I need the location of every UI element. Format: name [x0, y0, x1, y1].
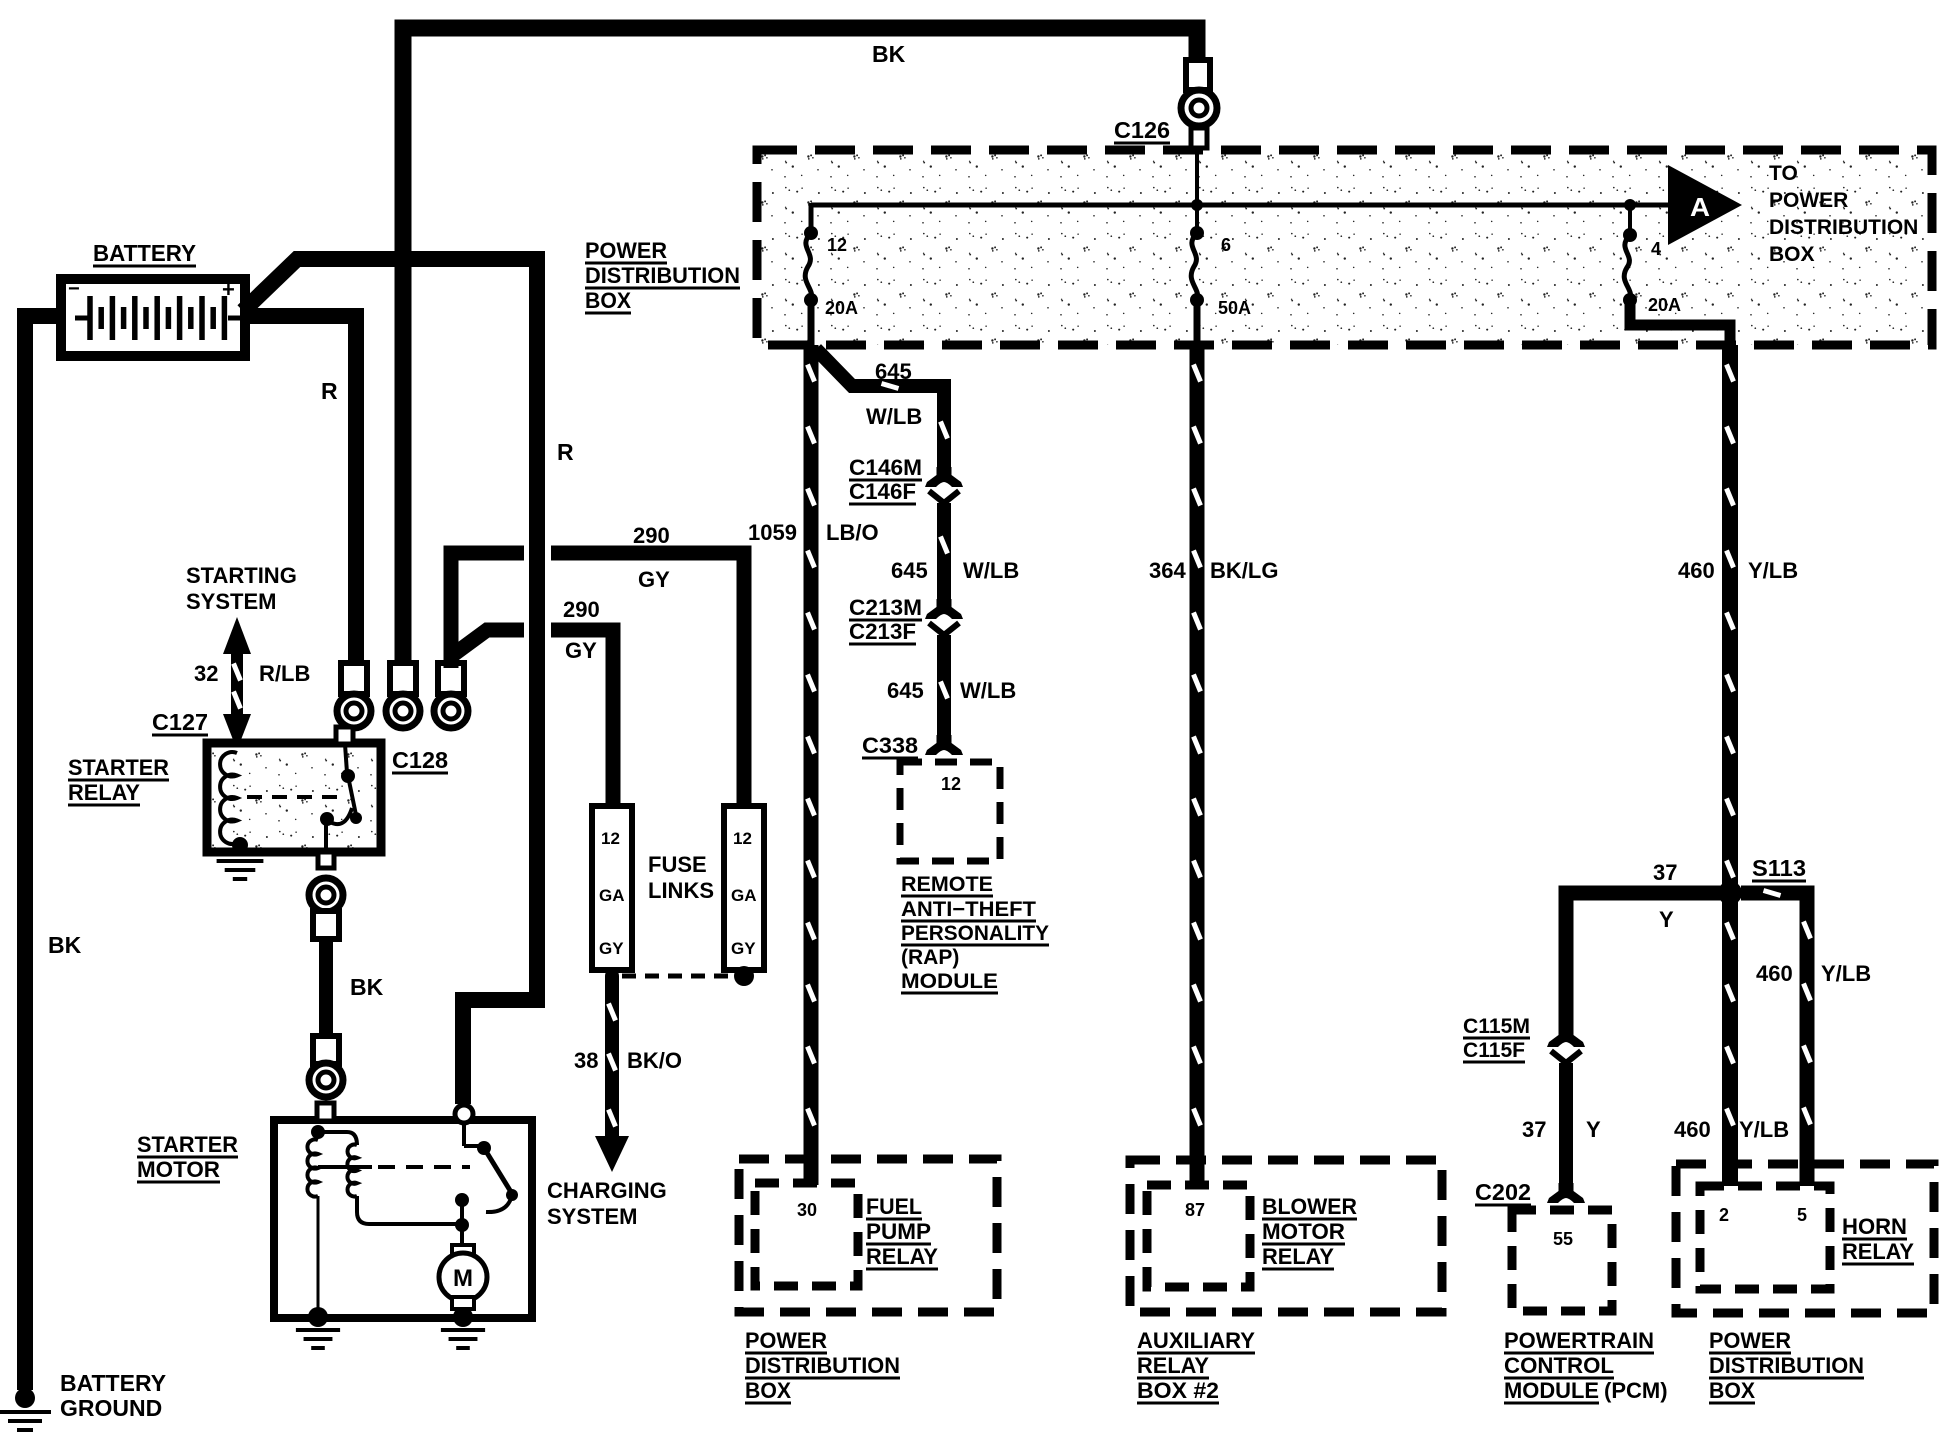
svg-text:50A: 50A: [1218, 298, 1251, 318]
svg-text:BATTERY: BATTERY: [60, 1370, 166, 1396]
svg-text:M: M: [453, 1265, 473, 1292]
svg-text:R: R: [321, 378, 338, 404]
svg-text:RELAY: RELAY: [68, 780, 140, 805]
svg-text:BOX: BOX: [1769, 243, 1815, 266]
svg-text:37: 37: [1522, 1117, 1546, 1142]
svg-text:POWERTRAIN: POWERTRAIN: [1504, 1328, 1654, 1353]
svg-text:GA: GA: [599, 886, 625, 905]
svg-text:FUSE: FUSE: [648, 852, 707, 877]
svg-text:38: 38: [574, 1048, 598, 1073]
svg-text:W/LB: W/LB: [866, 404, 922, 429]
svg-text:645: 645: [887, 678, 924, 703]
svg-text:REMOTE: REMOTE: [901, 873, 993, 896]
svg-text:+: +: [222, 277, 235, 302]
svg-text:645: 645: [891, 558, 928, 583]
svg-text:DISTRIBUTION: DISTRIBUTION: [745, 1353, 900, 1378]
svg-text:FUEL: FUEL: [866, 1194, 922, 1219]
svg-text:LB/O: LB/O: [826, 520, 879, 545]
svg-text:PERSONALITY: PERSONALITY: [901, 922, 1049, 945]
svg-text:(PCM): (PCM): [1604, 1378, 1668, 1403]
svg-text:Y/LB: Y/LB: [1748, 558, 1798, 583]
svg-text:BOX: BOX: [1709, 1378, 1755, 1403]
svg-text:20A: 20A: [825, 298, 858, 318]
svg-text:12: 12: [601, 829, 620, 848]
svg-text:PUMP: PUMP: [866, 1219, 931, 1244]
svg-text:12: 12: [941, 774, 961, 794]
svg-text:460: 460: [1678, 558, 1715, 583]
svg-text:12: 12: [827, 235, 847, 255]
svg-text:C146M: C146M: [849, 455, 922, 480]
svg-text:87: 87: [1185, 1200, 1205, 1220]
svg-text:S113: S113: [1752, 855, 1806, 881]
svg-text:A: A: [1690, 192, 1710, 222]
svg-text:Y/LB: Y/LB: [1739, 1117, 1789, 1142]
svg-text:RELAY: RELAY: [1842, 1239, 1914, 1264]
svg-text:BATTERY: BATTERY: [93, 240, 196, 266]
svg-text:460: 460: [1674, 1117, 1711, 1142]
svg-text:STARTER: STARTER: [137, 1132, 238, 1157]
svg-text:RELAY: RELAY: [1262, 1244, 1334, 1269]
svg-text:GY: GY: [599, 939, 624, 958]
svg-text:BK/LG: BK/LG: [1210, 558, 1278, 583]
svg-text:364: 364: [1149, 558, 1186, 583]
svg-text:(RAP): (RAP): [901, 946, 959, 969]
svg-text:290: 290: [563, 597, 600, 622]
svg-text:4: 4: [1651, 239, 1661, 259]
svg-text:1059: 1059: [748, 520, 797, 545]
svg-text:6: 6: [1221, 235, 1231, 255]
svg-text:BOX #2: BOX #2: [1137, 1378, 1219, 1403]
svg-text:DISTRIBUTION: DISTRIBUTION: [1709, 1353, 1864, 1378]
svg-text:W/LB: W/LB: [963, 558, 1019, 583]
svg-text:DISTRIBUTION: DISTRIBUTION: [1769, 216, 1918, 239]
svg-text:DISTRIBUTION: DISTRIBUTION: [585, 263, 740, 288]
svg-text:HORN: HORN: [1842, 1214, 1907, 1239]
svg-text:MOTOR: MOTOR: [137, 1157, 220, 1182]
svg-text:55: 55: [1553, 1229, 1573, 1249]
svg-text:−: −: [68, 278, 80, 300]
svg-text:W/LB: W/LB: [960, 678, 1016, 703]
svg-text:C146F: C146F: [849, 479, 916, 504]
svg-text:2: 2: [1719, 1205, 1729, 1225]
svg-text:BK/O: BK/O: [627, 1048, 682, 1073]
svg-text:AUXILIARY: AUXILIARY: [1137, 1328, 1255, 1353]
svg-text:BOX: BOX: [585, 288, 631, 313]
svg-text:BOX: BOX: [745, 1378, 791, 1403]
svg-text:MODULE: MODULE: [1504, 1378, 1599, 1403]
svg-text:BK: BK: [48, 932, 82, 958]
svg-text:BK: BK: [872, 41, 906, 67]
svg-text:CHARGING: CHARGING: [547, 1178, 667, 1203]
svg-text:645: 645: [875, 359, 912, 384]
svg-text:POWER: POWER: [1769, 189, 1848, 212]
svg-text:R/LB: R/LB: [259, 661, 310, 686]
svg-text:C127: C127: [152, 709, 208, 735]
svg-text:RELAY: RELAY: [866, 1244, 938, 1269]
svg-text:POWER: POWER: [585, 238, 667, 263]
svg-text:C213M: C213M: [849, 595, 922, 620]
svg-text:BK: BK: [350, 974, 384, 1000]
svg-text:GY: GY: [565, 638, 597, 663]
svg-text:C213F: C213F: [849, 619, 916, 644]
svg-text:SYSTEM: SYSTEM: [186, 589, 276, 614]
svg-text:GROUND: GROUND: [60, 1395, 162, 1421]
svg-text:C115F: C115F: [1463, 1039, 1525, 1062]
svg-text:C128: C128: [392, 747, 448, 773]
svg-text:GA: GA: [731, 886, 757, 905]
svg-text:290: 290: [633, 523, 670, 548]
svg-text:POWER: POWER: [745, 1328, 827, 1353]
svg-text:20A: 20A: [1648, 295, 1681, 315]
svg-text:TO: TO: [1769, 162, 1798, 185]
svg-text:POWER: POWER: [1709, 1328, 1791, 1353]
svg-text:MODULE: MODULE: [901, 970, 998, 993]
svg-text:5: 5: [1797, 1205, 1807, 1225]
svg-text:Y/LB: Y/LB: [1821, 961, 1871, 986]
svg-text:ANTI−THEFT: ANTI−THEFT: [901, 898, 1036, 921]
svg-text:GY: GY: [638, 567, 670, 592]
svg-text:LINKS: LINKS: [648, 878, 714, 903]
svg-text:CONTROL: CONTROL: [1504, 1353, 1614, 1378]
svg-text:SYSTEM: SYSTEM: [547, 1204, 637, 1229]
svg-text:GY: GY: [731, 939, 756, 958]
svg-text:Y: Y: [1659, 907, 1674, 932]
svg-text:37: 37: [1653, 860, 1677, 885]
svg-text:Y: Y: [1586, 1117, 1601, 1142]
svg-text:BLOWER: BLOWER: [1262, 1194, 1357, 1219]
svg-text:C115M: C115M: [1463, 1015, 1530, 1038]
svg-text:MOTOR: MOTOR: [1262, 1219, 1345, 1244]
svg-text:STARTING: STARTING: [186, 563, 297, 588]
svg-text:12: 12: [733, 829, 752, 848]
svg-text:STARTER: STARTER: [68, 755, 169, 780]
svg-text:C126: C126: [1114, 117, 1170, 143]
svg-text:C202: C202: [1475, 1179, 1531, 1205]
svg-text:30: 30: [797, 1200, 817, 1220]
svg-text:32: 32: [194, 661, 218, 686]
svg-text:460: 460: [1756, 961, 1793, 986]
svg-text:RELAY: RELAY: [1137, 1353, 1209, 1378]
svg-text:C338: C338: [862, 733, 918, 758]
svg-text:R: R: [557, 439, 574, 465]
